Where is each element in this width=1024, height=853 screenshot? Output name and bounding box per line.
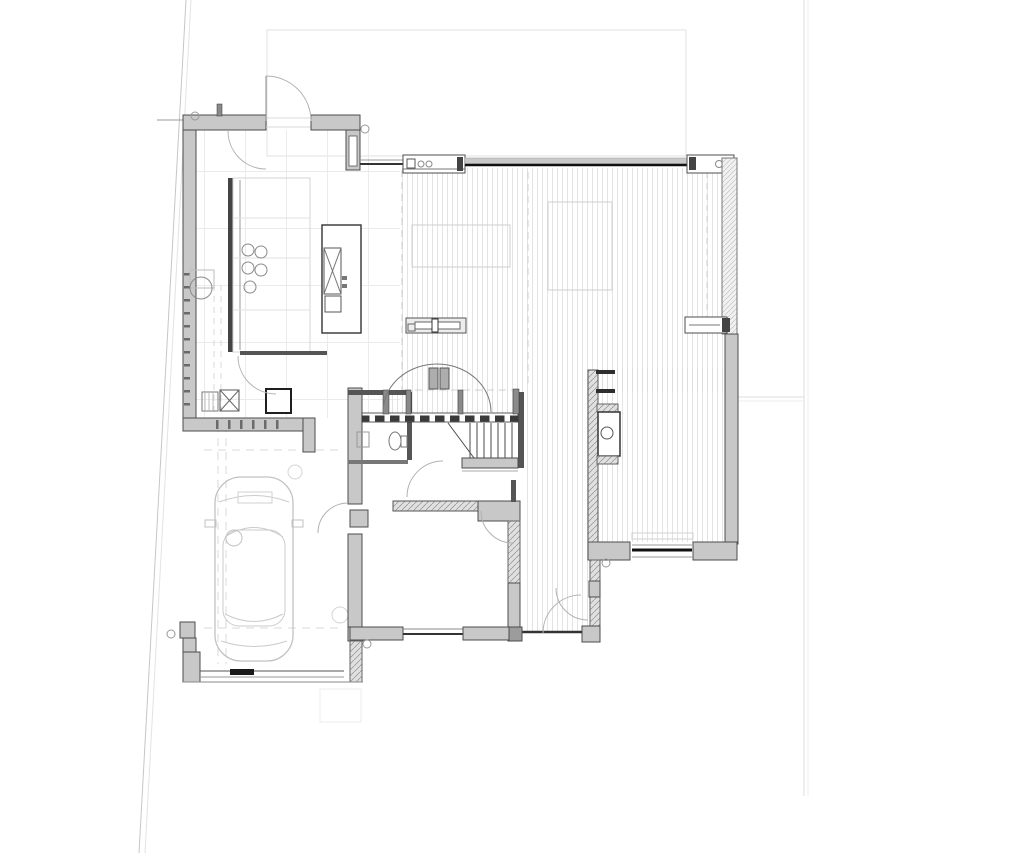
site-boundary-west — [139, 0, 186, 853]
car-trunk-line — [221, 641, 287, 647]
glazed-corner-strip — [722, 158, 737, 334]
wall-wc-south — [348, 460, 408, 464]
den-shelf-a — [596, 370, 615, 374]
glazing-band-north — [465, 158, 687, 164]
wall-study-east-hatch — [508, 521, 520, 583]
car-hood-line — [219, 496, 289, 503]
car-body — [215, 477, 293, 661]
garage-door-arc — [318, 503, 348, 533]
wall-study-se-corner — [508, 627, 522, 641]
wall-study-nw-corner — [350, 510, 368, 527]
entry-step-outline — [320, 689, 361, 722]
wall-garage-east-upper — [348, 388, 362, 504]
wall-east — [725, 334, 738, 544]
rainwater-pipe — [167, 630, 175, 638]
fireplace-hatch-top — [597, 404, 618, 412]
window-band-west — [184, 266, 190, 416]
wall-study-north-hatch — [393, 501, 478, 511]
screen-post — [458, 390, 463, 414]
wall-north-a — [183, 115, 266, 130]
screen-post — [513, 389, 519, 414]
wall-study-south-west — [350, 627, 403, 640]
wall-wc-north — [348, 390, 407, 395]
garage-floor-drain-b — [332, 607, 348, 623]
window-unit-a — [403, 155, 465, 173]
wc-toilet-tank — [401, 436, 407, 447]
hall-closet-box — [266, 389, 291, 413]
double-door-leaf-right — [440, 368, 449, 389]
wall-garage-west-lower — [183, 638, 196, 653]
wall-garage-se-hatch — [350, 641, 362, 682]
wall-den-south-east — [693, 542, 737, 560]
window-unit-c-mullion — [722, 318, 730, 332]
floor-plan-viewport — [0, 0, 1024, 853]
garage-floor-drain-a — [288, 465, 302, 479]
front-door-arc — [266, 76, 311, 121]
wall-garage-ne-block — [303, 418, 315, 452]
floor-kitchen-tiles — [196, 130, 400, 418]
wc-toilet-bowl — [389, 432, 401, 450]
rainwater-pipe — [363, 640, 371, 648]
glazed-screen-band — [362, 413, 518, 422]
wall-study-north-block — [478, 501, 520, 521]
window-unit-a-mullion — [457, 157, 463, 171]
wall-study-south-east — [463, 627, 509, 640]
site-post — [217, 104, 222, 116]
floor-corridor-timber — [524, 392, 588, 632]
screen-post — [406, 390, 411, 414]
corridor-wall-block — [589, 581, 600, 597]
fireplace-hatch-bottom — [597, 456, 618, 464]
kitchen-counter-wall — [228, 178, 233, 352]
wall-north-b — [311, 115, 360, 130]
wall-study-east — [508, 583, 520, 627]
utility-partition — [240, 351, 327, 355]
car-rear-window-line — [225, 614, 283, 622]
wall-den-south-west — [588, 542, 630, 560]
garage-door-marker — [230, 669, 254, 675]
corridor-sw-corner — [582, 626, 600, 642]
car-dashboard-detail — [238, 492, 272, 503]
wall-garage-east-lower — [348, 534, 362, 627]
stub-window-inner — [349, 136, 357, 166]
wc-door-arc — [407, 461, 443, 497]
wall-garage-west-jog — [180, 622, 195, 638]
radiator-mid-tick — [432, 319, 438, 332]
wall-garage-sw-corner — [183, 652, 200, 682]
car-windshield-line — [225, 528, 283, 538]
window-band-utility — [210, 420, 280, 429]
island-faucet — [342, 284, 347, 288]
floor-plan-drawing — [0, 0, 1024, 853]
island-faucet — [342, 276, 347, 280]
wall-study-stub — [511, 480, 516, 502]
window-unit-b-mullion — [689, 157, 696, 170]
stair-landing — [462, 458, 518, 468]
den-shelf-b — [596, 389, 615, 393]
car-roof — [223, 530, 285, 626]
double-door-leaf-left — [429, 368, 438, 389]
